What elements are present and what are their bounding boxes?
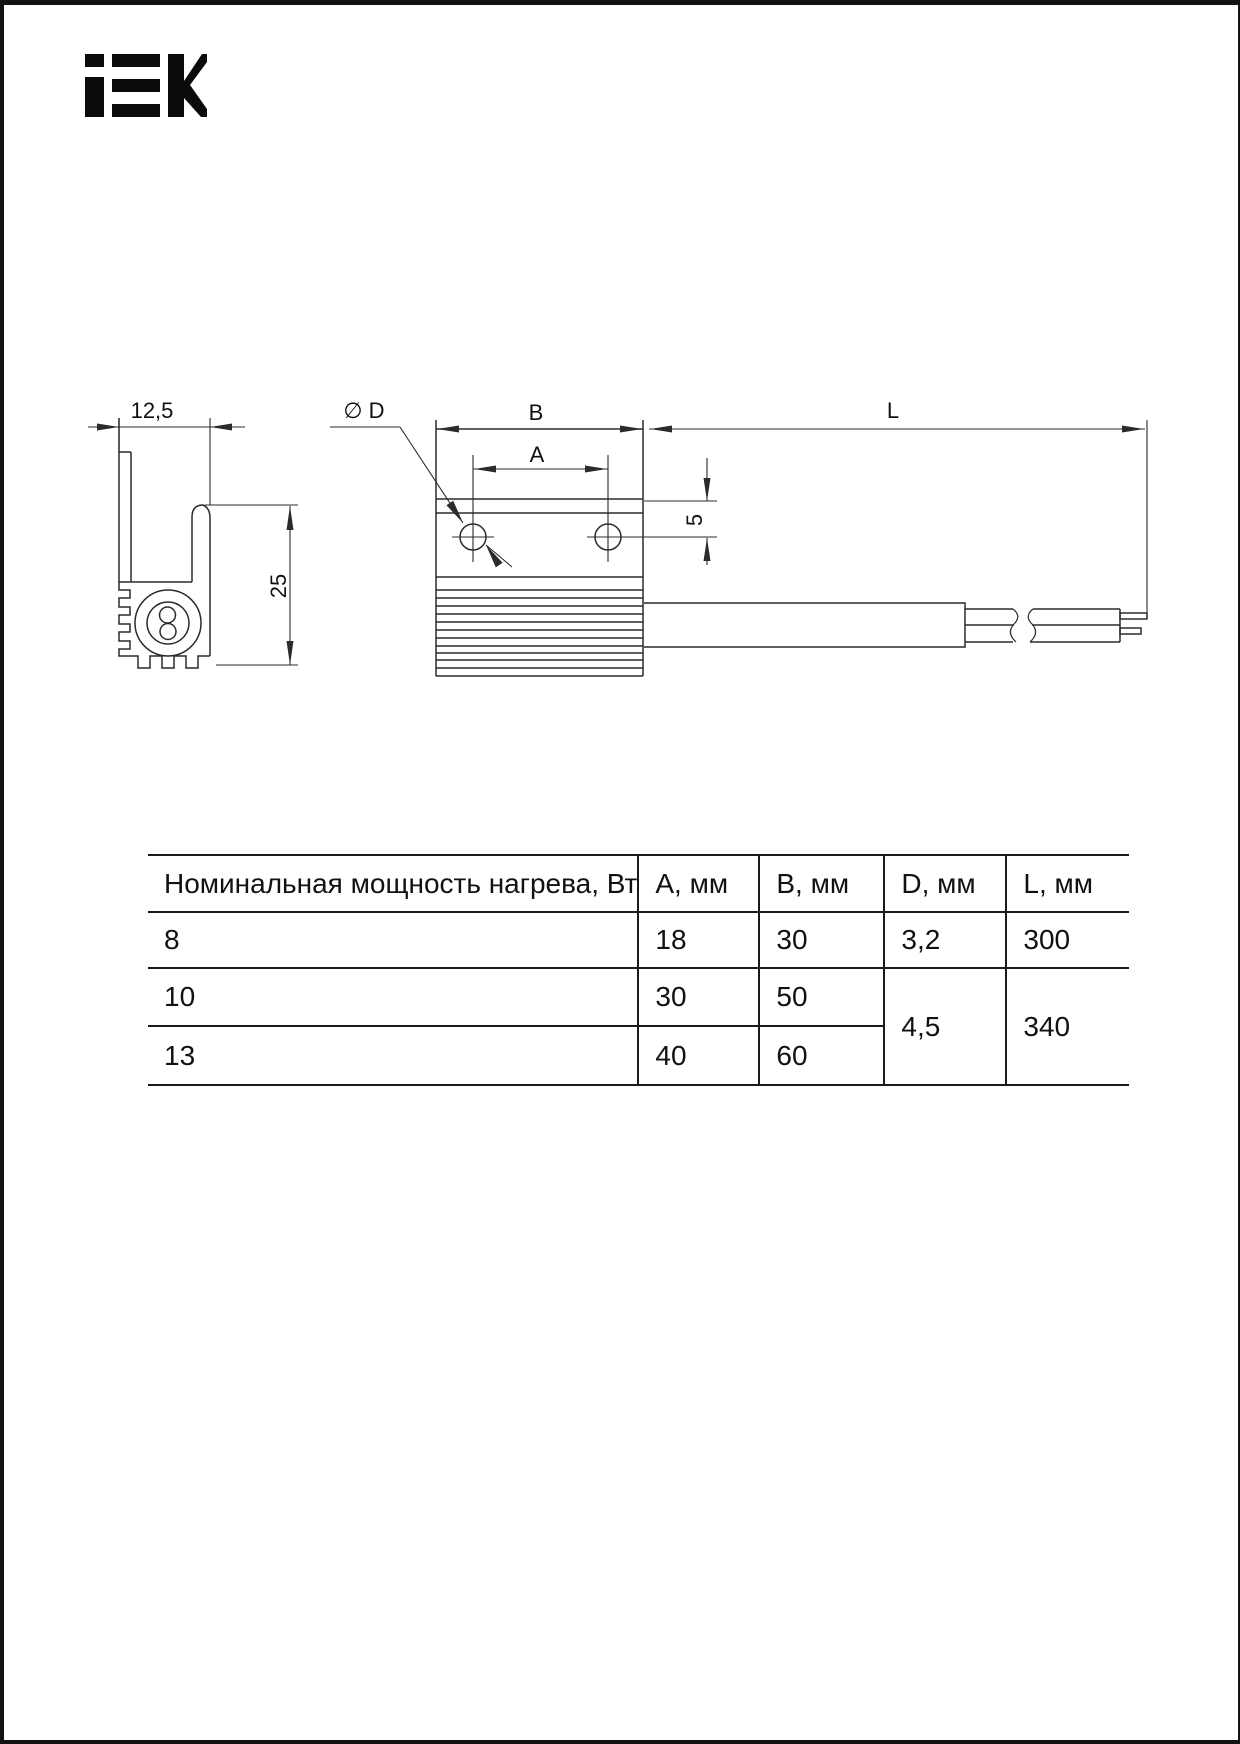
- cell-b: 60: [759, 1026, 884, 1085]
- dim-12-5: [88, 418, 245, 505]
- dim-b: [436, 426, 643, 433]
- cell-power: 13: [148, 1026, 638, 1085]
- cell-b: 30: [759, 912, 884, 968]
- cell-a: 40: [638, 1026, 759, 1085]
- cell-b: 50: [759, 968, 884, 1026]
- cell-d: 3,2: [884, 912, 1006, 968]
- cell-d-merged: 4,5: [884, 968, 1006, 1085]
- cable-drawing: [644, 603, 1147, 647]
- dim-label-a: A: [530, 442, 545, 467]
- bare-wire-end: [1120, 613, 1147, 619]
- dim-l: [649, 420, 1147, 618]
- dim-label-12-5: 12,5: [131, 398, 174, 423]
- dim-5-offset: [644, 458, 717, 565]
- cell-a: 30: [638, 968, 759, 1026]
- table-row: 10 30 50 4,5 340: [148, 968, 1129, 1026]
- side-view-drawing: [119, 418, 210, 668]
- dim-label-diameter-d: ∅ D: [343, 398, 384, 423]
- spec-table: Номинальная мощность нагрева, Вт А, мм В…: [148, 854, 1129, 1086]
- cell-l: 300: [1006, 912, 1129, 968]
- diameter-leader: [330, 427, 512, 567]
- header-b: В, мм: [759, 855, 884, 912]
- cell-power: 8: [148, 912, 638, 968]
- cell-l-merged: 340: [1006, 968, 1129, 1085]
- table-row: 8 18 30 3,2 300: [148, 912, 1129, 968]
- header-d: D, мм: [884, 855, 1006, 912]
- datasheet-page: 12,5 25 ∅ D B A 5 L Номинальная мощность…: [0, 0, 1240, 1744]
- dim-label-5: 5: [682, 514, 707, 526]
- cell-power: 10: [148, 968, 638, 1026]
- dim-label-25: 25: [266, 574, 291, 598]
- cell-a: 18: [638, 912, 759, 968]
- header-l: L, мм: [1006, 855, 1129, 912]
- table-header-row: Номинальная мощность нагрева, Вт А, мм В…: [148, 855, 1129, 912]
- dim-label-l: L: [887, 398, 899, 423]
- header-power: Номинальная мощность нагрева, Вт: [148, 855, 638, 912]
- bare-wire-end: [1120, 628, 1141, 634]
- dim-label-b: B: [529, 400, 544, 425]
- header-a: А, мм: [638, 855, 759, 912]
